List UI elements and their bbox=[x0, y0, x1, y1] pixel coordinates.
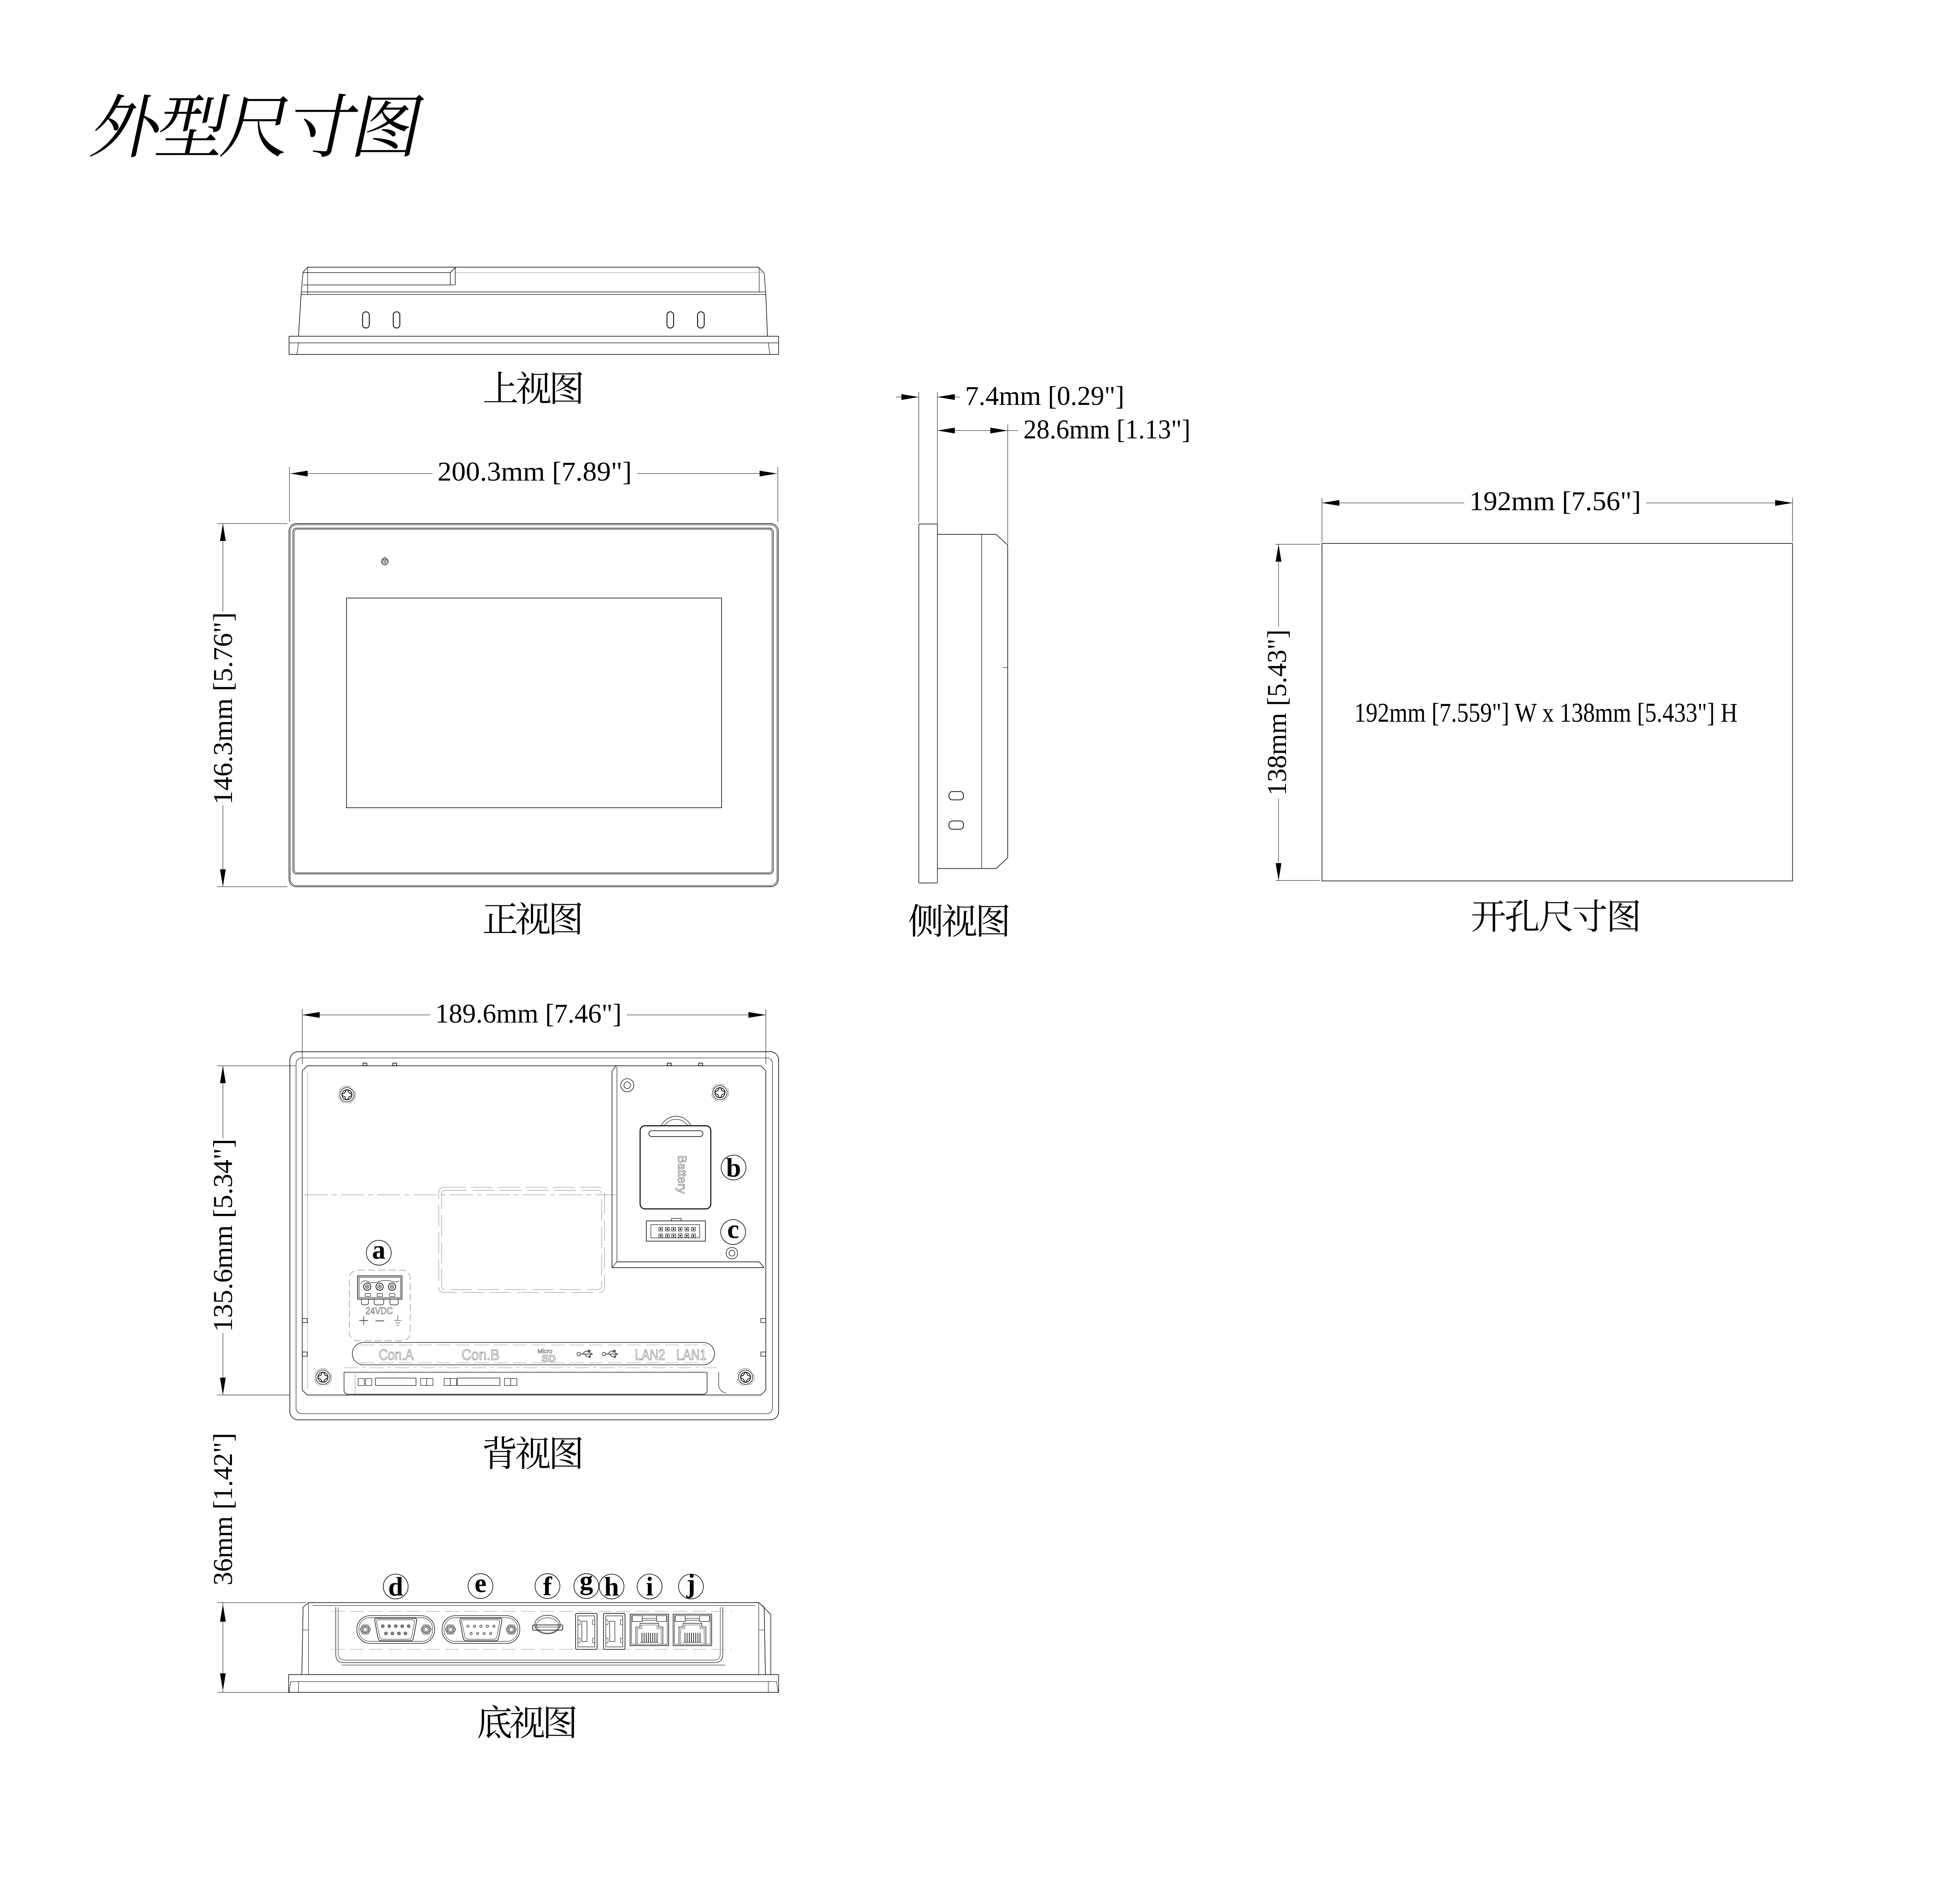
svg-text:200.3mm [7.89"]: 200.3mm [7.89"] bbox=[437, 457, 632, 487]
svg-text:LAN2: LAN2 bbox=[635, 1346, 665, 1363]
svg-text:Con.B: Con.B bbox=[461, 1346, 500, 1363]
svg-text:Battery: Battery bbox=[675, 1155, 688, 1194]
svg-text:a: a bbox=[372, 1235, 386, 1265]
svg-text:i: i bbox=[646, 1572, 653, 1602]
svg-text:j: j bbox=[686, 1569, 696, 1599]
svg-text:d: d bbox=[388, 1572, 403, 1602]
svg-text:24VDC: 24VDC bbox=[366, 1305, 393, 1316]
svg-text:g: g bbox=[580, 1566, 593, 1596]
svg-text:138mm [5.43"]: 138mm [5.43"] bbox=[1262, 629, 1292, 796]
svg-text:b: b bbox=[726, 1153, 741, 1183]
svg-text:192mm [7.56"]: 192mm [7.56"] bbox=[1470, 487, 1641, 517]
svg-text:36mm [1.42"]: 36mm [1.42"] bbox=[208, 1433, 238, 1586]
svg-text:28.6mm [1.13"]: 28.6mm [1.13"] bbox=[1023, 415, 1190, 445]
svg-text:f: f bbox=[543, 1572, 552, 1601]
svg-text:LAN1: LAN1 bbox=[676, 1346, 707, 1363]
svg-text:h: h bbox=[604, 1572, 619, 1602]
svg-text:7.4mm [0.29"]: 7.4mm [0.29"] bbox=[965, 381, 1124, 411]
svg-text:192mm [7.559"] W x 138mm [5.43: 192mm [7.559"] W x 138mm [5.433"] H bbox=[1354, 698, 1738, 728]
svg-text:Con.A: Con.A bbox=[379, 1346, 414, 1363]
svg-text:e: e bbox=[475, 1569, 487, 1598]
svg-text:146.3mm [5.76"]: 146.3mm [5.76"] bbox=[208, 613, 238, 805]
svg-text:SD: SD bbox=[542, 1353, 556, 1364]
svg-text:c: c bbox=[727, 1215, 739, 1244]
svg-text:189.6mm [7.46"]: 189.6mm [7.46"] bbox=[435, 999, 622, 1029]
svg-text:135.6mm [5.34"]: 135.6mm [5.34"] bbox=[208, 1139, 238, 1332]
